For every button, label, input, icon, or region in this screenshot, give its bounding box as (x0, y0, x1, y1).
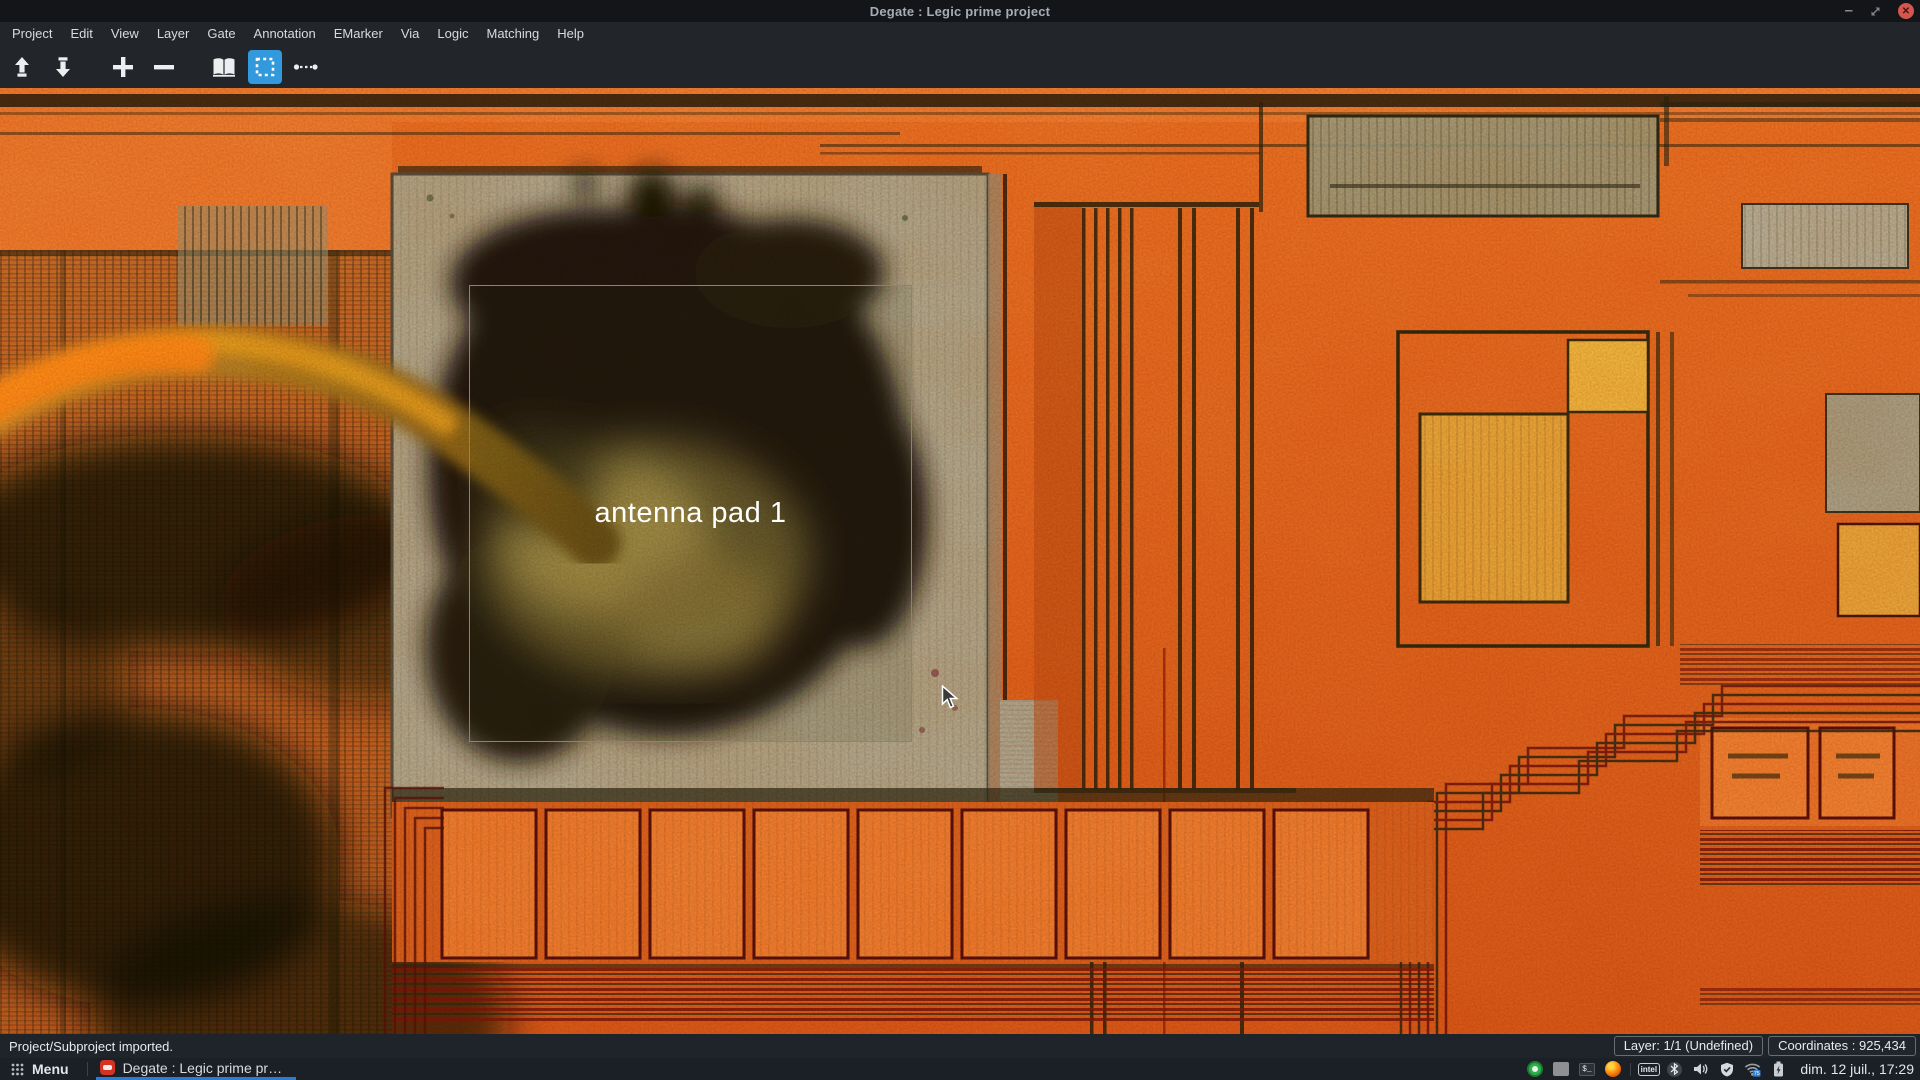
degate-window: Degate : Legic prime project – ✕ Project… (0, 0, 1920, 1080)
layer-down-icon (51, 55, 75, 79)
task-title: Degate : Legic prime pr… (123, 1060, 283, 1076)
menu-help[interactable]: Help (548, 22, 593, 46)
area-selection-icon (253, 55, 277, 79)
menu-logic[interactable]: Logic (428, 22, 477, 46)
svg-text:75: 75 (1754, 1071, 1760, 1077)
wire-tool-icon (293, 56, 319, 78)
taskbar: Menu Degate : Legic prime pr… $_ intel (0, 1058, 1920, 1080)
zoom-out-icon (151, 54, 177, 80)
app-grid-icon (11, 1063, 24, 1076)
gate-library-button[interactable] (207, 50, 241, 84)
menu-via[interactable]: Via (392, 22, 429, 46)
coordinates-indicator: Coordinates : 925,434 (1768, 1036, 1916, 1056)
app-launcher-button[interactable] (6, 1058, 28, 1080)
archive-manager-icon[interactable] (1552, 1061, 1569, 1078)
firefox-icon[interactable] (1604, 1061, 1621, 1078)
system-tray: $_ intel (1526, 1061, 1914, 1078)
annotation-label: antenna pad 1 (595, 497, 787, 530)
tray-separator (1630, 1063, 1631, 1076)
layer-up-icon (10, 55, 34, 79)
shield-check-icon[interactable] (1718, 1061, 1735, 1078)
die-image-canvas[interactable]: antenna pad 1 (0, 88, 1920, 1034)
bluetooth-glyph (1670, 1063, 1679, 1075)
zoom-out-button[interactable] (147, 50, 181, 84)
menu-button[interactable]: Menu (32, 1061, 69, 1077)
degate-app-icon (100, 1060, 115, 1075)
status-bar: Project/Subproject imported. Layer: 1/1 … (0, 1034, 1920, 1058)
menu-gate[interactable]: Gate (198, 22, 244, 46)
task-button-degate[interactable]: Degate : Legic prime pr… (96, 1058, 296, 1080)
menu-edit[interactable]: Edit (61, 22, 101, 46)
area-selection-button[interactable] (248, 50, 282, 84)
annotation-rectangle[interactable]: antenna pad 1 (469, 285, 912, 742)
battery-glyph (1773, 1061, 1784, 1077)
wifi-glyph: 75 (1744, 1062, 1761, 1077)
menu-view[interactable]: View (102, 22, 148, 46)
menu-project[interactable]: Project (3, 22, 61, 46)
status-right: Layer: 1/1 (Undefined) Coordinates : 925… (1614, 1036, 1916, 1056)
menu-emarker[interactable]: EMarker (325, 22, 392, 46)
wifi-icon[interactable]: 75 (1744, 1061, 1761, 1078)
taskbar-clock[interactable]: dim. 12 juil., 17:29 (1800, 1061, 1914, 1077)
volume-icon[interactable] (1692, 1061, 1709, 1078)
tool-bar (0, 46, 1920, 88)
close-icon: ✕ (1902, 6, 1910, 17)
intel-graphics-icon[interactable]: intel (1640, 1061, 1657, 1078)
maximize-button[interactable] (1869, 5, 1882, 18)
status-message: Project/Subproject imported. (4, 1039, 173, 1054)
zoom-in-button[interactable] (106, 50, 140, 84)
wire-tool-button[interactable] (289, 50, 323, 84)
minimize-button[interactable]: – (1845, 0, 1853, 22)
close-button[interactable]: ✕ (1898, 3, 1914, 19)
title-bar: Degate : Legic prime project – ✕ (0, 0, 1920, 22)
die-photo (0, 88, 1920, 1034)
shield-glyph (1720, 1062, 1734, 1077)
layer-up-button[interactable] (5, 50, 39, 84)
menu-annotation[interactable]: Annotation (245, 22, 325, 46)
bluetooth-icon[interactable] (1666, 1061, 1683, 1078)
mouse-cursor (941, 685, 963, 710)
taskbar-separator (87, 1062, 88, 1076)
window-controls: – ✕ (1845, 0, 1914, 22)
zoom-in-icon (110, 54, 136, 80)
maximize-icon (1869, 5, 1882, 18)
speaker-glyph (1693, 1062, 1709, 1076)
menu-layer[interactable]: Layer (148, 22, 199, 46)
terminal-icon[interactable]: $_ (1578, 1061, 1595, 1078)
menu-matching[interactable]: Matching (477, 22, 548, 46)
window-title: Degate : Legic prime project (870, 4, 1050, 19)
layer-indicator: Layer: 1/1 (Undefined) (1614, 1036, 1763, 1056)
battery-charging-icon[interactable] (1770, 1061, 1787, 1078)
layer-down-button[interactable] (46, 50, 80, 84)
screenshot-tool-icon[interactable] (1526, 1061, 1543, 1078)
menu-bar: Project Edit View Layer Gate Annotation … (0, 22, 1920, 46)
gate-library-icon (211, 55, 237, 79)
